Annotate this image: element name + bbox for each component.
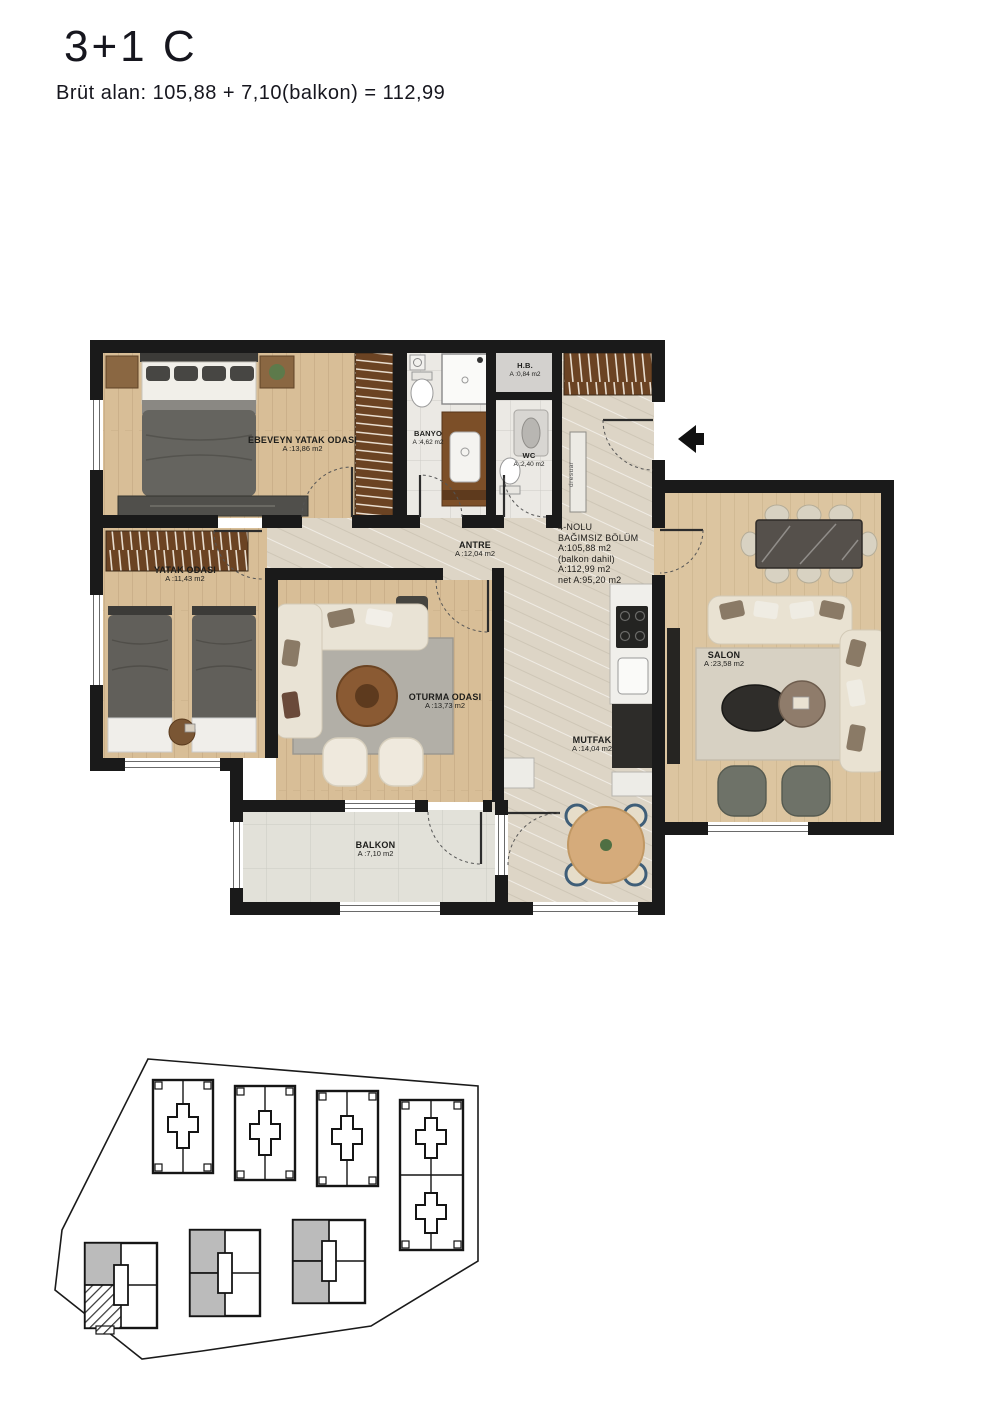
building-2 [235,1086,295,1180]
site-plan-drawing [52,1048,497,1370]
page-title: 3+1 C [64,22,198,72]
dresuar-label: dresuar [568,436,584,512]
building-4 [400,1100,463,1250]
floor-plan-drawing [90,340,912,926]
gross-area-subtitle: Brüt alan: 105,88 + 7,10(balkon) = 112,9… [56,82,445,105]
building-6 [190,1230,260,1316]
building-3 [317,1091,378,1186]
site-plan [52,1048,497,1370]
building-1 [153,1080,213,1173]
unit-info-block: 4-NOLU BAĞIMSIZ BÖLÜM A:105,88 m2 (balko… [558,522,662,585]
entrance-arrow-icon [678,425,704,453]
building-7 [293,1220,365,1303]
floor-plan: EBEVEYN YATAK ODASI A :13,86 m2 BANYO A … [90,340,912,926]
page: 3+1 C Brüt alan: 105,88 + 7,10(balkon) =… [0,0,1000,1417]
building-5-current [85,1243,157,1334]
